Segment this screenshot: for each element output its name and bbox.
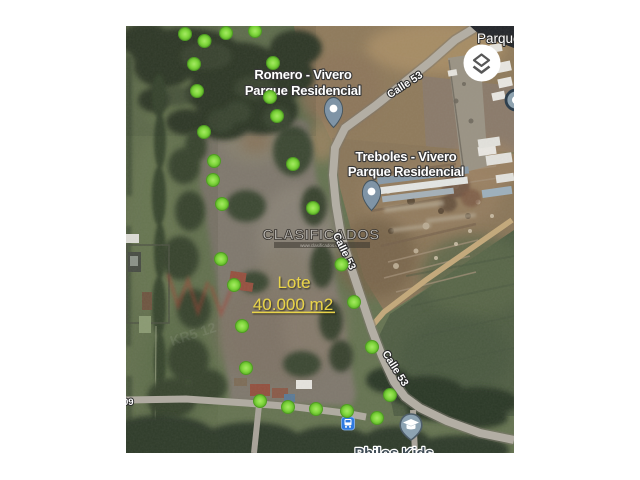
svg-text:Philos Kids: Philos Kids: [355, 446, 434, 453]
svg-text:CLASIFICADOS: CLASIFICADOS: [262, 227, 379, 244]
svg-text:Romero - Vivero: Romero - Vivero: [254, 67, 351, 82]
svg-text:Parque: Parque: [477, 31, 514, 46]
svg-text:Treboles - Vivero: Treboles - Vivero: [355, 149, 456, 164]
svg-text:Parque Residencial: Parque Residencial: [348, 164, 464, 179]
svg-text:40.000 m2: 40.000 m2: [253, 295, 333, 314]
svg-text:Parque Residencial: Parque Residencial: [245, 83, 361, 98]
svg-text:09: 09: [126, 397, 134, 408]
svg-text:Lote: Lote: [277, 273, 310, 292]
